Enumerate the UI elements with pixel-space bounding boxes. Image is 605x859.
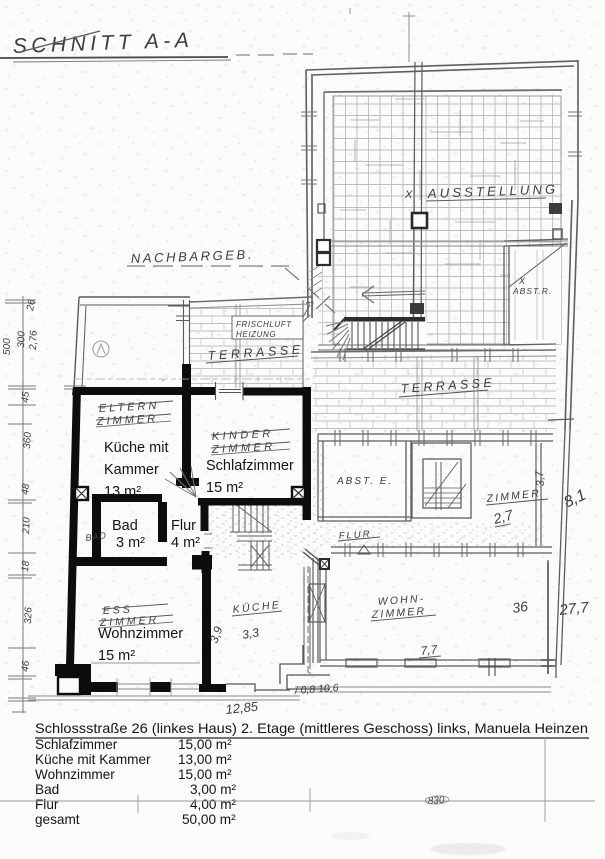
svg-text:2,76: 2,76: [28, 330, 40, 351]
svg-text:13,00 m²: 13,00 m²: [178, 752, 232, 767]
svg-text:48: 48: [20, 483, 32, 495]
svg-text:50,00 m²: 50,00 m²: [182, 812, 236, 827]
svg-text:18: 18: [20, 560, 32, 572]
svg-text:210: 210: [21, 517, 33, 535]
svg-text:ABST.R.: ABST.R.: [512, 286, 552, 296]
svg-text:Flur: Flur: [171, 518, 196, 534]
svg-text:36: 36: [511, 598, 529, 616]
svg-text:Schlafzimmer: Schlafzimmer: [35, 737, 118, 752]
svg-text:X: X: [518, 276, 526, 286]
svg-text:300: 300: [16, 331, 28, 348]
svg-text:4 m²: 4 m²: [171, 535, 200, 551]
svg-text:46: 46: [20, 660, 32, 672]
svg-text:45: 45: [20, 391, 32, 403]
svg-text:FRISCHLUFT: FRISCHLUFT: [236, 320, 292, 329]
svg-text:26: 26: [25, 298, 38, 312]
svg-text:HEIZUNG: HEIZUNG: [236, 330, 276, 339]
svg-text:15,00 m²: 15,00 m²: [178, 767, 232, 782]
svg-text:4,00 m²: 4,00 m²: [190, 797, 237, 812]
svg-text:X: X: [404, 189, 413, 201]
svg-text:326: 326: [23, 607, 35, 624]
svg-text:360: 360: [22, 431, 34, 449]
svg-text:3 m²: 3 m²: [116, 535, 145, 551]
svg-text:15 m²: 15 m²: [98, 648, 135, 664]
svg-text:3,7: 3,7: [534, 470, 547, 487]
svg-text:Schlossstraße 26 (linkes Haus): Schlossstraße 26 (linkes Haus) 2. Etage …: [35, 721, 588, 736]
svg-text:Flur: Flur: [35, 797, 59, 812]
svg-text:Bad: Bad: [112, 518, 138, 534]
svg-text:FLUR: FLUR: [338, 529, 371, 542]
svg-text:500: 500: [2, 338, 13, 355]
svg-text:3,3: 3,3: [241, 625, 260, 642]
svg-text:15,00 m²: 15,00 m²: [178, 737, 232, 752]
svg-text:13 m²: 13 m²: [104, 484, 141, 500]
svg-text:7,7: 7,7: [420, 642, 439, 658]
svg-text:3,00 m²: 3,00 m²: [190, 782, 237, 797]
svg-text:Küche mit Kammer: Küche mit Kammer: [35, 752, 151, 767]
svg-text:ABST. E.: ABST. E.: [336, 476, 393, 487]
svg-text:gesamt: gesamt: [35, 812, 80, 827]
svg-text:15 m²: 15 m²: [206, 480, 243, 496]
svg-text:Bad: Bad: [35, 782, 59, 797]
svg-text:Schlafzimmer: Schlafzimmer: [206, 458, 294, 474]
svg-text:Kammer: Kammer: [104, 462, 159, 478]
svg-text:Wohnzimmer: Wohnzimmer: [35, 767, 115, 782]
svg-text:Küche mit: Küche mit: [104, 440, 168, 456]
svg-text:830: 830: [427, 795, 445, 807]
